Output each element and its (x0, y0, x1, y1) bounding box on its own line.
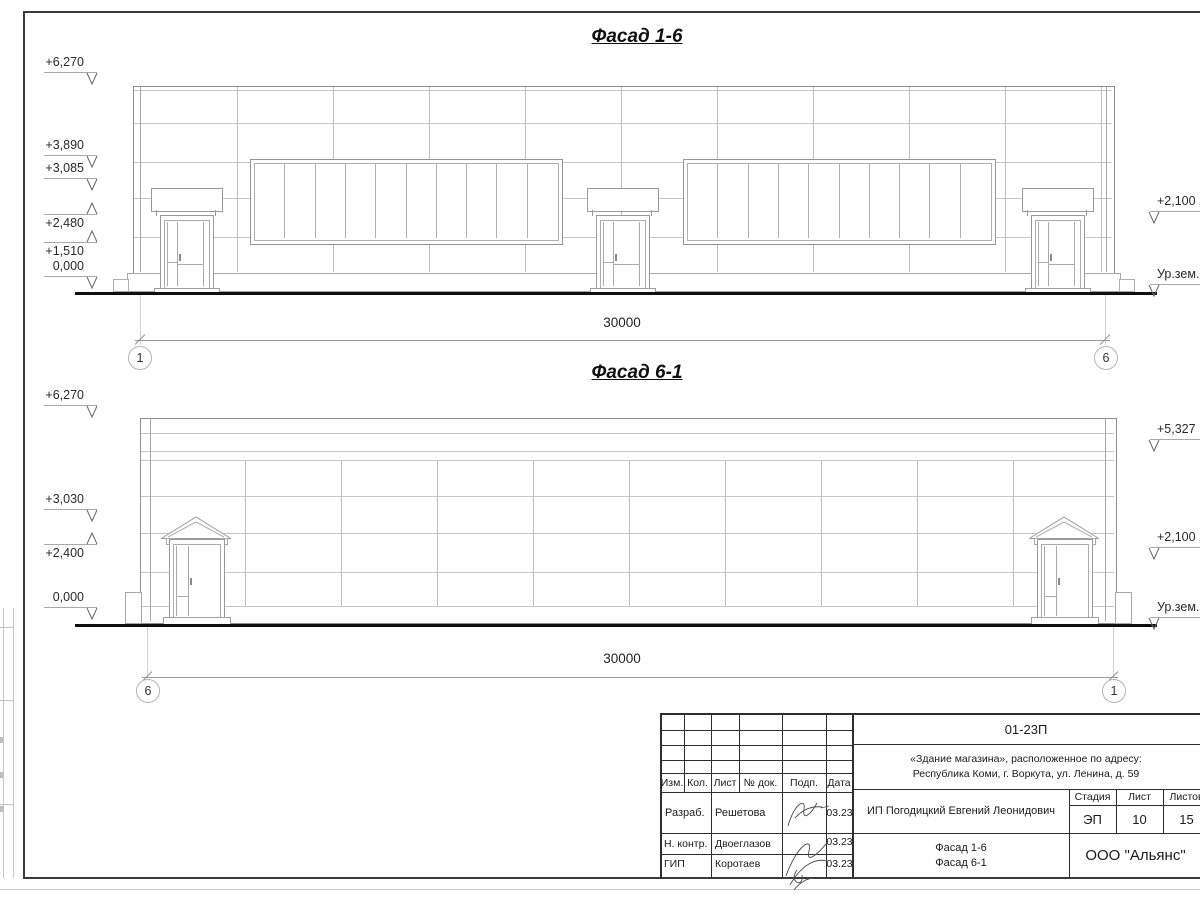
drawing-line (315, 164, 316, 238)
drawing-line (651, 210, 652, 216)
drawing-line (134, 123, 1112, 124)
drawing-line (748, 164, 749, 238)
drawing-line (821, 460, 822, 606)
elevation-arrow-icon (86, 532, 98, 545)
drawing-line (142, 677, 1118, 678)
elevation-arrow-icon (86, 276, 98, 289)
drawing-line (284, 164, 285, 238)
col-header-list: Лист (711, 773, 739, 792)
elevation-arrow-icon (86, 607, 98, 620)
elevation-arrow-icon (86, 509, 98, 522)
col-header-kol: Кол. (684, 773, 711, 792)
signature (780, 832, 834, 892)
drawing-line (869, 164, 870, 238)
elevation-arrow-icon (86, 405, 98, 418)
row-name: Двоеглазов (715, 833, 782, 854)
row-role: ГИП (664, 852, 712, 875)
drawing-line (135, 340, 1110, 341)
drawing-line (496, 164, 497, 238)
drawing-line (188, 546, 189, 616)
drawing-line (134, 90, 1112, 91)
drawing-line (177, 264, 203, 265)
drawing-line (717, 164, 718, 238)
elevation-mark-label: +6,270 (24, 55, 84, 69)
drawing-line (725, 460, 726, 606)
elevation-arrow-icon (86, 72, 98, 85)
drawing-line (1048, 264, 1074, 265)
drawing-line (778, 164, 779, 238)
drawing-line (1086, 210, 1087, 216)
row-role: Н. контр. (664, 833, 712, 854)
elevation-arrow-icon (86, 155, 98, 168)
listov-value: 15 (1163, 805, 1200, 833)
facade1-axis-bubble-right: 6 (1094, 346, 1118, 370)
drawing-line (899, 164, 900, 238)
document-code: 01-23П (852, 714, 1200, 744)
drawing-line (533, 460, 534, 606)
drawing-line (141, 460, 1114, 461)
elevation-mark-label: +3,085 (24, 161, 84, 175)
elevation-mark-label: +6,270 (24, 388, 84, 402)
elevation-mark-label: +3,030 (24, 492, 84, 506)
elevation-arrow-icon (1148, 439, 1160, 452)
door-frame (173, 544, 221, 620)
drawing-line (1101, 87, 1102, 272)
drawing-line (141, 496, 1114, 497)
elevation-mark-label: +2,100 (1157, 530, 1196, 544)
elevation-mark-label: +2,480 (24, 216, 84, 230)
drawing-line (613, 264, 639, 265)
drawing-line (1044, 596, 1056, 597)
client-name: ИП Погодицкий Евгений Леонидович (854, 789, 1068, 833)
drawing-line (140, 87, 141, 272)
stage-header: Стадия (1069, 789, 1116, 805)
door-handle (190, 578, 192, 585)
col-header-izm: Изм. (660, 773, 684, 792)
drawing-line (141, 572, 1114, 573)
side-step (113, 279, 129, 292)
drawing-line (215, 210, 216, 216)
entrance-canopy (1022, 188, 1094, 212)
sheet-title-line1: Фасад 1-6 (935, 841, 986, 856)
entrance-canopy (151, 188, 223, 212)
drawing-line (1005, 87, 1006, 272)
list-value: 10 (1116, 805, 1163, 833)
list-header: Лист (1116, 789, 1163, 805)
side-step (125, 592, 142, 624)
drawing-line (345, 164, 346, 238)
col-header-data: Дата (826, 773, 852, 792)
drawing-line (808, 164, 809, 238)
door-handle (1050, 254, 1052, 261)
drawing-line (1013, 460, 1014, 606)
drawing-line (917, 460, 918, 606)
col-header-doc: № док. (739, 773, 782, 792)
drawing-line (203, 222, 204, 286)
project-address-line1: «Здание магазина», расположенное по адре… (910, 752, 1142, 766)
door-frame (1041, 544, 1089, 620)
drawing-line (245, 460, 246, 606)
drawing-line (141, 451, 1114, 452)
drawing-line (150, 419, 151, 621)
drawing-line (639, 222, 640, 286)
drawing-line (375, 164, 376, 238)
listov-header: Листов (1163, 789, 1200, 805)
facade2-dimension-label: 30000 (522, 651, 722, 666)
entrance-canopy (587, 188, 659, 212)
door-handle (1058, 578, 1060, 585)
project-address-line2: Республика Коми, г. Воркута, ул. Ленина,… (913, 767, 1140, 781)
side-step (1115, 592, 1132, 624)
drawing-sheet: Фасад 1-6 Фасад 6-1 +6,270+3,890+3,085+2… (0, 0, 1200, 900)
project-address: «Здание магазина», расположенное по адре… (852, 745, 1200, 788)
door-handle (615, 254, 617, 261)
elevation-mark-label: +3,890 (24, 138, 84, 152)
drawing-line (177, 222, 178, 286)
drawing-line (406, 164, 407, 238)
facade2-axis-bubble-left: 6 (136, 679, 160, 703)
elevation-arrow-icon (1148, 284, 1160, 297)
drawing-line (176, 546, 177, 616)
drawing-line (613, 222, 614, 286)
drawing-line (341, 460, 342, 606)
drawing-line (1048, 222, 1049, 286)
elevation-mark-label: Ур.зем. (1157, 600, 1199, 614)
drawing-line (1044, 546, 1045, 616)
drawing-line (167, 262, 177, 263)
sheet-title-line2: Фасад 6-1 (935, 856, 986, 871)
drawing-line (1074, 222, 1075, 286)
titleblock-line (661, 760, 852, 761)
stage-value: ЭП (1069, 805, 1116, 833)
facade1-dimension-label: 30000 (522, 315, 722, 330)
drawing-line (141, 433, 1114, 434)
drawing-line (156, 210, 157, 216)
elevation-arrow-icon (86, 178, 98, 191)
drawing-line (603, 222, 604, 286)
drawing-line (176, 596, 188, 597)
signature (784, 794, 830, 834)
row-name: Решетова (715, 792, 781, 833)
drawing-line (437, 460, 438, 606)
drawing-line (1027, 210, 1028, 216)
door-pediment (161, 514, 231, 540)
drawing-line (839, 164, 840, 238)
drawing-line (167, 222, 168, 286)
elevation-arrow-icon (86, 230, 98, 243)
elevation-arrow-icon (1148, 211, 1160, 224)
door-pediment (1029, 514, 1099, 540)
elevation-mark-label: +1,510 (24, 244, 84, 258)
drawing-line (629, 460, 630, 606)
side-step (1119, 279, 1135, 292)
drawing-line (527, 164, 528, 238)
organization-name: ООО "Альянс" (1069, 833, 1200, 878)
row-role: Разраб. (665, 792, 710, 833)
elevation-mark-label: +2,100 (1157, 194, 1196, 208)
drawing-line (141, 606, 1114, 607)
drawing-line (1056, 546, 1057, 616)
drawing-line (960, 164, 961, 238)
col-header-podp: Подп. (782, 773, 826, 792)
drawing-line (436, 164, 437, 238)
drawing-line (466, 164, 467, 238)
titleblock-line (661, 745, 852, 746)
drawing-line (1038, 222, 1039, 286)
drawing-line (929, 164, 930, 238)
ground-line (75, 292, 1157, 295)
elevation-mark-label: +2,400 (24, 546, 84, 560)
elevation-mark-label: 0,000 (24, 590, 84, 604)
titleblock-line (661, 730, 852, 731)
facade2-axis-bubble-right: 1 (1102, 679, 1126, 703)
elevation-arrow-icon (86, 202, 98, 215)
drawing-line (1105, 419, 1106, 621)
elevation-arrow-icon (1148, 617, 1160, 630)
elevation-mark-label: Ур.зем. (1157, 267, 1199, 281)
facade1-axis-bubble-left: 1 (128, 346, 152, 370)
row-name: Коротаев (715, 852, 782, 875)
drawing-line (1038, 262, 1048, 263)
elevation-mark-label: +5,327 (1157, 422, 1196, 436)
elevation-mark-label: 0,000 (24, 259, 84, 273)
drawing-line (603, 262, 613, 263)
elevation-arrow-icon (1148, 547, 1160, 560)
door-handle (179, 254, 181, 261)
drawing-line (237, 87, 238, 272)
ground-line (75, 624, 1157, 627)
sheet-title: Фасад 1-6 Фасад 6-1 (854, 833, 1068, 878)
row-date: 03.23 (827, 792, 852, 833)
drawing-line (141, 533, 1114, 534)
drawing-line (1106, 87, 1107, 272)
drawing-line (592, 210, 593, 216)
